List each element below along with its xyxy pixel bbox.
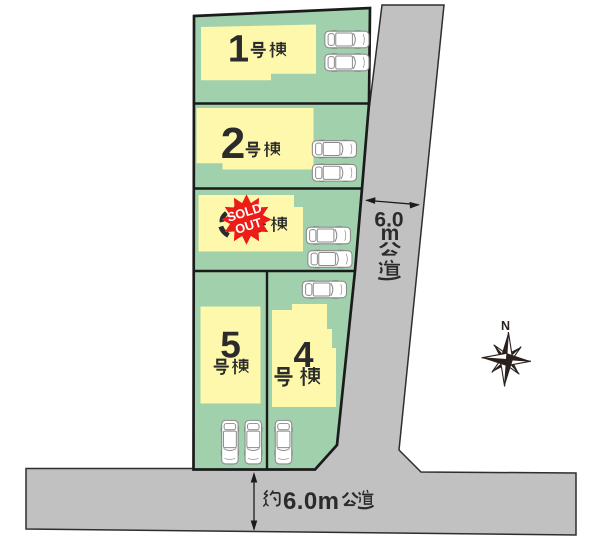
svg-text:N: N [501,319,510,333]
svg-text:6.0m: 6.0m [283,488,339,515]
svg-text:m: m [381,222,400,245]
svg-text:2: 2 [221,119,245,168]
svg-text:1: 1 [228,29,249,71]
